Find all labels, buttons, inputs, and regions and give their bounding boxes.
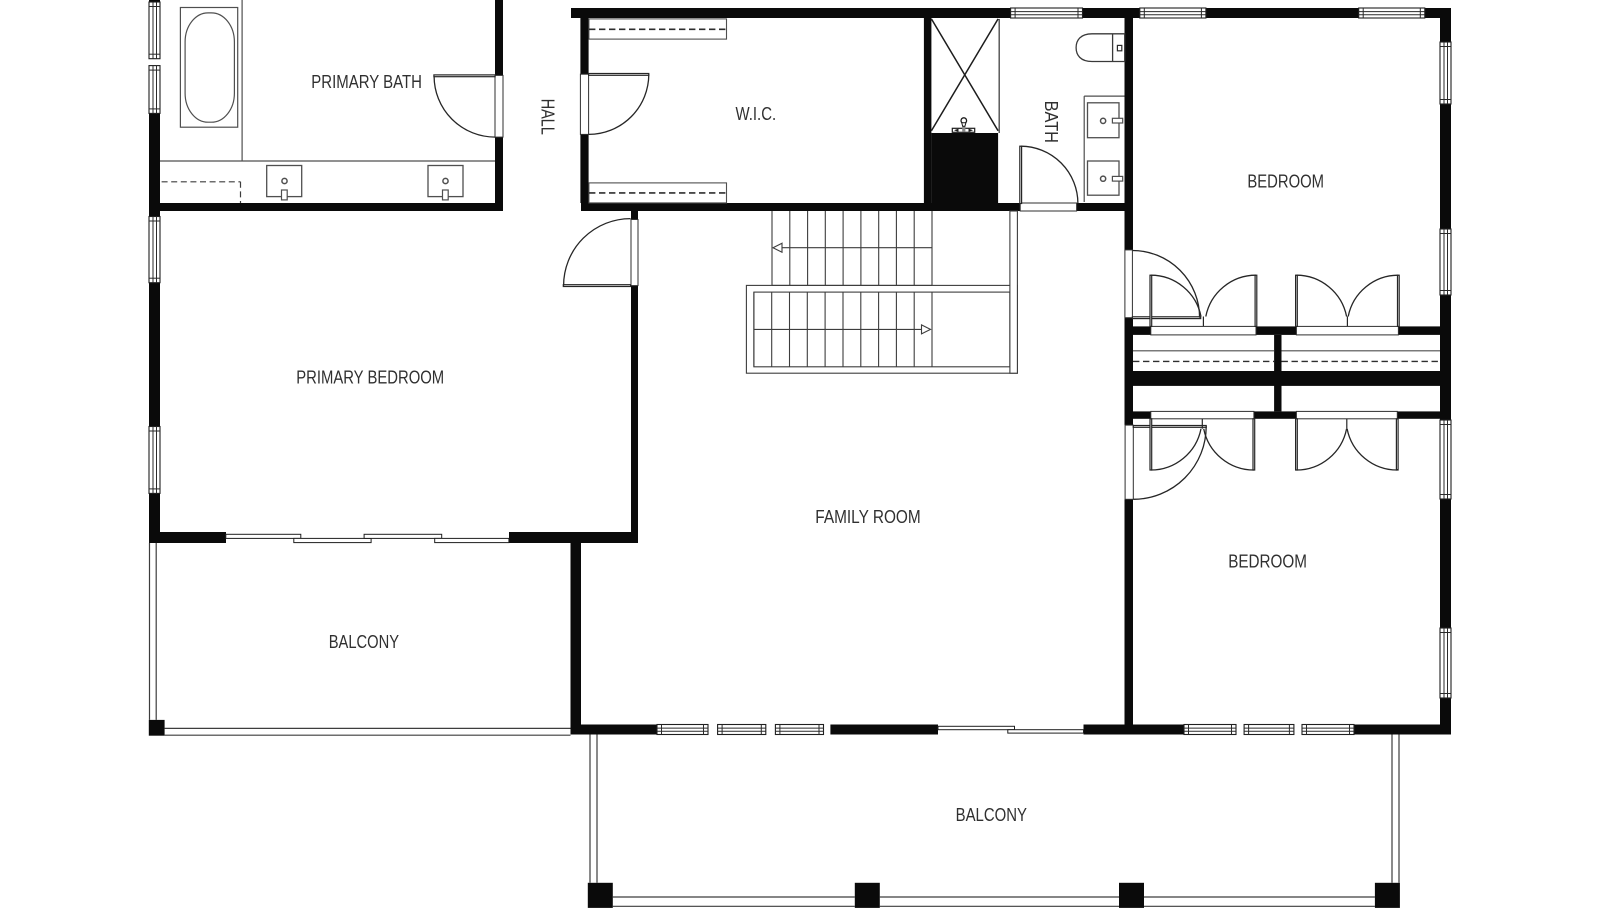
svg-text:BALCONY: BALCONY (329, 632, 399, 652)
svg-text:BATH: BATH (1041, 101, 1061, 143)
svg-text:HALL: HALL (537, 99, 557, 135)
svg-text:FAMILY ROOM: FAMILY ROOM (815, 507, 920, 527)
svg-text:W.I.C.: W.I.C. (735, 104, 776, 124)
svg-text:BEDROOM: BEDROOM (1247, 172, 1324, 192)
svg-text:PRIMARY BEDROOM: PRIMARY BEDROOM (296, 368, 444, 388)
svg-text:BALCONY: BALCONY (956, 805, 1027, 825)
svg-text:PRIMARY BATH: PRIMARY BATH (311, 72, 422, 92)
svg-text:BEDROOM: BEDROOM (1228, 552, 1307, 572)
